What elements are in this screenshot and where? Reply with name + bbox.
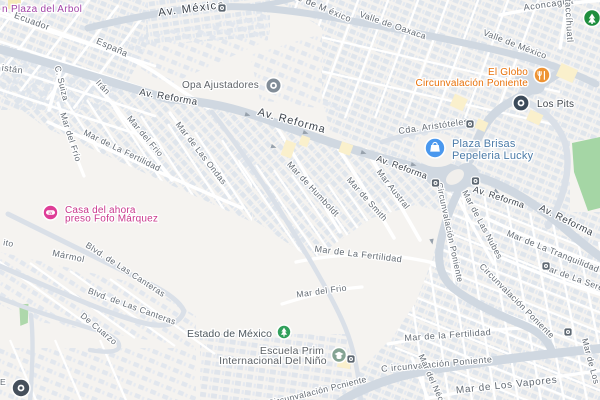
svg-text:Los Pits: Los Pits (537, 99, 574, 110)
svg-text:n Plaza del Arbol: n Plaza del Arbol (2, 4, 82, 15)
svg-text:ito: ito (3, 237, 15, 249)
svg-text:preso Fofo Márquez: preso Fofo Márquez (65, 214, 158, 225)
svg-text:Circunvalación Poniente: Circunvalación Poniente (416, 78, 529, 89)
svg-text:El Globo: El Globo (488, 67, 528, 78)
svg-text:Estado de México: Estado de México (187, 328, 272, 340)
svg-text:Internacional Del Niño: Internacional Del Niño (219, 355, 327, 367)
svg-text:Plaza Brisas: Plaza Brisas (452, 138, 516, 150)
svg-text:E: E (0, 377, 6, 387)
svg-text:Pepeleria Lucky: Pepeleria Lucky (452, 150, 534, 162)
svg-text:Opa Ajustadores: Opa Ajustadores (182, 80, 259, 91)
